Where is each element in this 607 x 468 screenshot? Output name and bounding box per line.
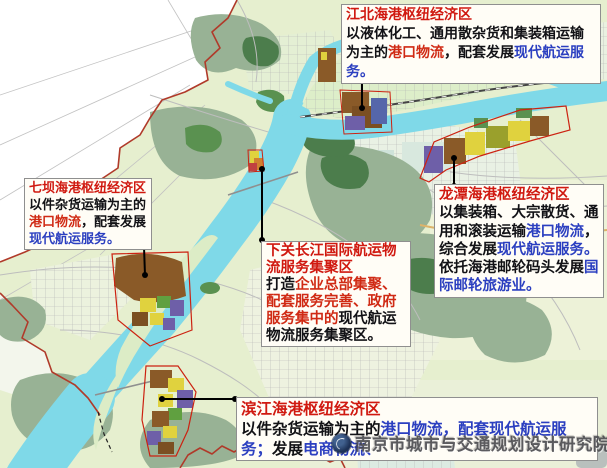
label-box-jiangbei: 江北海港枢纽经济区 以液体化工、通用散杂货和集装箱运输为主的港口物流，配套发展现… [341,4,601,84]
zone-desc-segment: 发展 [272,440,303,458]
zone-title: 下关长江国际航运物流服务集聚区 [266,243,406,277]
zone-desc-segment: 港口物流 [388,45,444,61]
zone-desc-segment: 打造 [266,277,295,293]
zone-desc-segment: ，配套发展 [444,45,514,61]
label-box-binjiang: 滨江海港枢纽经济区 以件杂货运输为主的港口物流，配套现代航运服务；发展电商物流、 [236,397,598,461]
zone-title: 江北海港枢纽经济区 [346,6,596,25]
zone-desc-segment: 依托海港邮轮码头发展 [439,260,584,276]
label-box-longtan: 龙潭海港枢纽经济区 以集装箱、大宗散货、通用和滚装运输港口物流，综合发展现代航运… [434,184,604,298]
zone-desc-segment: 以件杂货运输为主的 [29,198,146,213]
zone-desc-segment: 现代航运服务。 [29,232,120,247]
label-box-qiba: 七坝海港枢纽经济区 以件杂货运输为主的港口物流，配套发展现代航运服务。 [24,178,152,250]
leader-qiba [144,247,145,275]
zone-desc-segment: 港口物流 [526,224,584,240]
zone-desc-segment: 电商物流、 [303,440,381,458]
zone-desc-segment: 港口物流 [29,215,81,230]
zone-title: 七坝海港枢纽经济区 [29,180,147,197]
zone-desc-segment: ，配套发展 [81,215,146,230]
zone-title: 龙潭海港枢纽经济区 [439,186,599,204]
planning-map-figure: 江北海港枢纽经济区 以液体化工、通用散杂货和集装箱运输为主的港口物流，配套发展现… [0,0,607,468]
zone-desc-segment: 现代航运服务。 [497,242,599,258]
zone-title: 滨江海港枢纽经济区 [241,399,593,419]
zone-desc-segment: 以件杂货运输为主的 [241,420,381,438]
label-box-xiaguan: 下关长江国际航运物流服务集聚区 打造企业总部集聚、配套服务完善、政府服务集中的现… [261,241,411,347]
